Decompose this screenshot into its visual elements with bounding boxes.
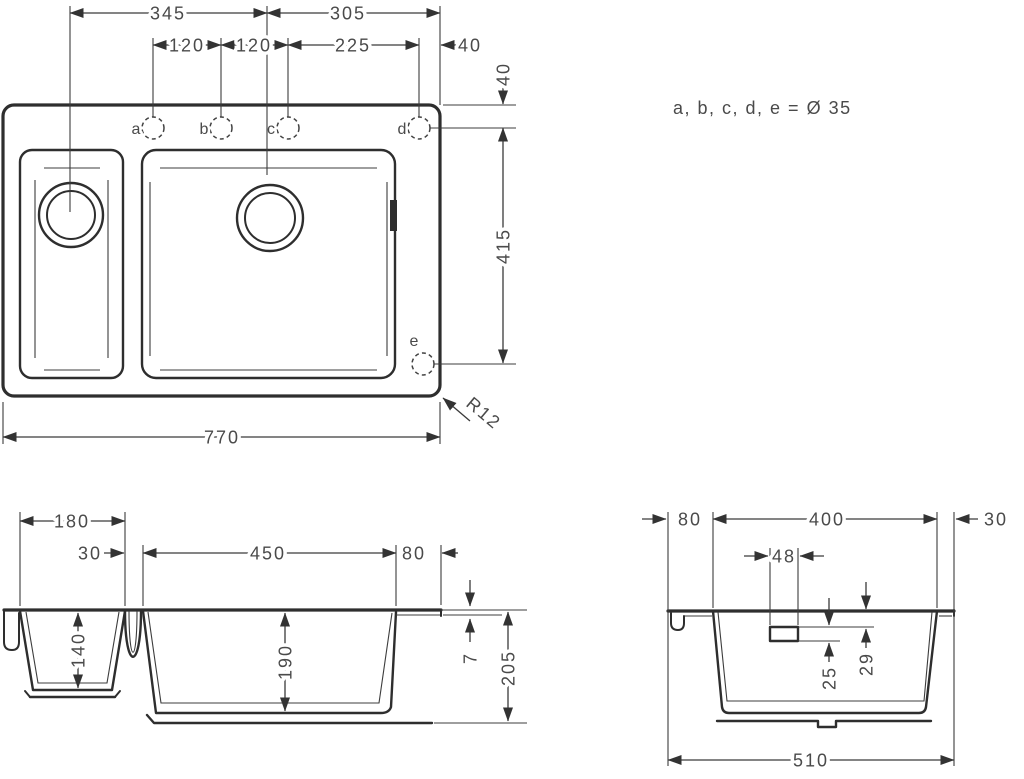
- dim-30-side-label: 30: [984, 509, 1008, 529]
- dim-180-label: 180: [54, 511, 90, 531]
- dim-120b-label: 120: [236, 35, 272, 55]
- plan-view: a b c d e 345 305 120 120: [3, 3, 516, 447]
- dim-40-vertical-label: 40: [493, 62, 513, 86]
- dim-450-label: 450: [250, 543, 286, 563]
- tap-hole-b-label: b: [200, 121, 209, 138]
- dim-225-label: 225: [335, 35, 371, 55]
- front-rim-edge: [671, 613, 684, 630]
- dim-305-label: 305: [330, 3, 366, 23]
- tap-hole-b: [210, 117, 232, 139]
- dim-40-right-label: 40: [458, 35, 482, 55]
- large-bowl-drain: [237, 185, 303, 251]
- side-extension-lines: [668, 512, 954, 766]
- dim-80-side-label: 80: [678, 509, 702, 529]
- dim-205-label: 205: [498, 650, 518, 686]
- tap-hole-c-label: c: [267, 121, 275, 138]
- dim-190-label: 190: [275, 644, 295, 680]
- dim-400-label: 400: [809, 509, 845, 529]
- tap-hole-d: [408, 117, 430, 139]
- dim-30-front-label: 30: [78, 543, 102, 563]
- tap-hole-c: [277, 117, 299, 139]
- dim-345-label: 345: [150, 3, 186, 23]
- side-section-profile: [668, 610, 954, 727]
- dim-770-label: 770: [204, 427, 240, 447]
- large-bowl-inner-lines: [150, 168, 387, 370]
- dim-140-label: 140: [68, 632, 88, 668]
- radius-r12-label: R12: [462, 393, 505, 433]
- hole-diameter-note: a, b, c, d, e = Ø 35: [673, 98, 852, 118]
- large-bowl-section: [143, 611, 396, 713]
- dim-25-label: 25: [819, 666, 839, 690]
- dim-7-label: 7: [460, 652, 480, 664]
- dim-510-label: 510: [793, 750, 829, 770]
- tap-hole-a: [142, 117, 164, 139]
- bowl-divider-section: [125, 611, 141, 657]
- side-section-view: 80 400 30 48 25 29 510: [642, 509, 1008, 770]
- dim-48-label: 48: [772, 546, 796, 566]
- technical-drawing-page: a b c d e 345 305 120 120: [0, 0, 1024, 779]
- front-section-view: 180 30 450 80 140 190 7 205: [4, 511, 527, 723]
- tap-hole-e-label: e: [410, 333, 419, 350]
- left-rim-edge: [4, 611, 19, 650]
- dim-415-label: 415: [493, 228, 513, 264]
- dim-120a-label: 120: [169, 35, 205, 55]
- overflow-slot-mark: [390, 200, 397, 231]
- small-bowl-drain: [39, 183, 103, 247]
- plan-dimensions: 345 305 120 120 225 40 40 415 770 R12: [3, 3, 513, 447]
- sink-outline: [3, 105, 440, 396]
- tap-hole-d-label: d: [398, 121, 407, 138]
- large-bowl-side-section: [713, 611, 937, 713]
- side-dimensions: 80 400 30 48 25 29 510: [642, 509, 1008, 770]
- tap-hole-e: [412, 353, 434, 375]
- tap-hole-a-label: a: [132, 121, 141, 138]
- dim-29-label: 29: [856, 652, 876, 676]
- overflow-hole-section: [770, 627, 798, 641]
- sink-dimension-drawing: a b c d e 345 305 120 120: [0, 0, 1024, 779]
- dim-80-front-label: 80: [402, 543, 426, 563]
